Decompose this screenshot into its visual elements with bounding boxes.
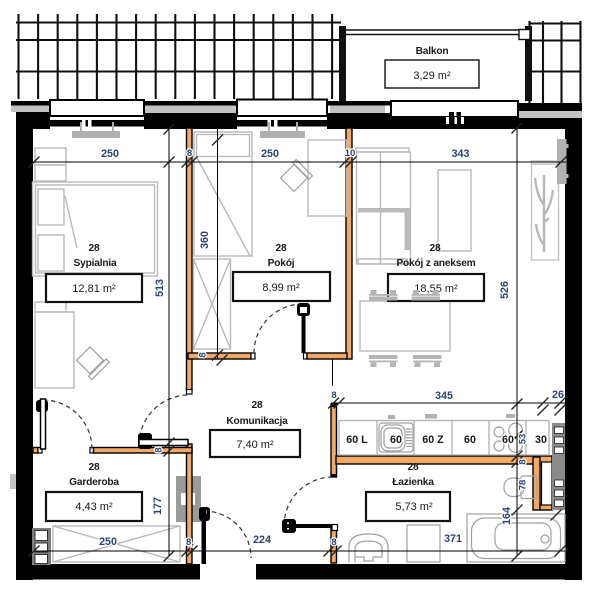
svg-text:250: 250 <box>261 148 279 160</box>
svg-text:8: 8 <box>518 459 529 464</box>
svg-text:60: 60 <box>502 434 514 446</box>
svg-text:12,81 m²: 12,81 m² <box>72 283 116 295</box>
svg-text:250: 250 <box>99 536 117 548</box>
svg-text:8,99 m²: 8,99 m² <box>262 282 300 294</box>
svg-text:28: 28 <box>89 243 100 254</box>
svg-text:164: 164 <box>501 507 513 525</box>
svg-text:28: 28 <box>252 400 263 411</box>
svg-text:8: 8 <box>154 447 165 452</box>
svg-text:78: 78 <box>518 480 529 491</box>
svg-text:177: 177 <box>152 497 164 515</box>
svg-text:513: 513 <box>154 279 166 297</box>
svg-text:8,: 8, <box>186 537 194 548</box>
svg-text:7,40 m²: 7,40 m² <box>236 439 274 451</box>
svg-text:3,29 m²: 3,29 m² <box>413 70 451 82</box>
svg-text:Balkon: Balkon <box>416 46 449 57</box>
svg-text:526: 526 <box>499 281 511 299</box>
svg-text:Łazienka: Łazienka <box>392 477 434 488</box>
svg-text:60 Z: 60 Z <box>422 434 444 446</box>
svg-text:28: 28 <box>276 243 287 254</box>
svg-text:8: 8 <box>331 537 336 548</box>
svg-text:28: 28 <box>430 243 441 254</box>
svg-text:Pokój: Pokój <box>268 258 295 269</box>
svg-text:360: 360 <box>199 231 211 249</box>
svg-text:Komunikacja: Komunikacja <box>226 416 288 427</box>
svg-text:343: 343 <box>452 148 470 160</box>
svg-text:8: 8 <box>198 352 209 357</box>
svg-text:224: 224 <box>253 534 271 546</box>
svg-text:28: 28 <box>408 462 419 473</box>
svg-text:60 L: 60 L <box>346 434 368 446</box>
svg-text:4,43 m²: 4,43 m² <box>75 501 113 513</box>
svg-text:250: 250 <box>101 148 119 160</box>
svg-text:371: 371 <box>444 533 462 545</box>
svg-text:5,73 m²: 5,73 m² <box>395 501 433 513</box>
svg-text:Garderoba: Garderoba <box>69 477 119 488</box>
svg-text:26: 26 <box>552 389 564 401</box>
svg-text:345: 345 <box>435 390 453 402</box>
svg-text:60: 60 <box>464 434 476 446</box>
svg-text:53: 53 <box>518 434 529 445</box>
svg-text:10: 10 <box>345 148 356 159</box>
svg-text:8: 8 <box>331 390 336 401</box>
svg-text:28: 28 <box>89 462 100 473</box>
svg-text:Sypialnia: Sypialnia <box>74 258 117 269</box>
svg-text:Pokój z aneksem: Pokój z aneksem <box>396 258 475 269</box>
svg-text:30: 30 <box>535 434 547 446</box>
svg-text:60: 60 <box>390 434 402 446</box>
svg-text:8: 8 <box>187 148 192 159</box>
